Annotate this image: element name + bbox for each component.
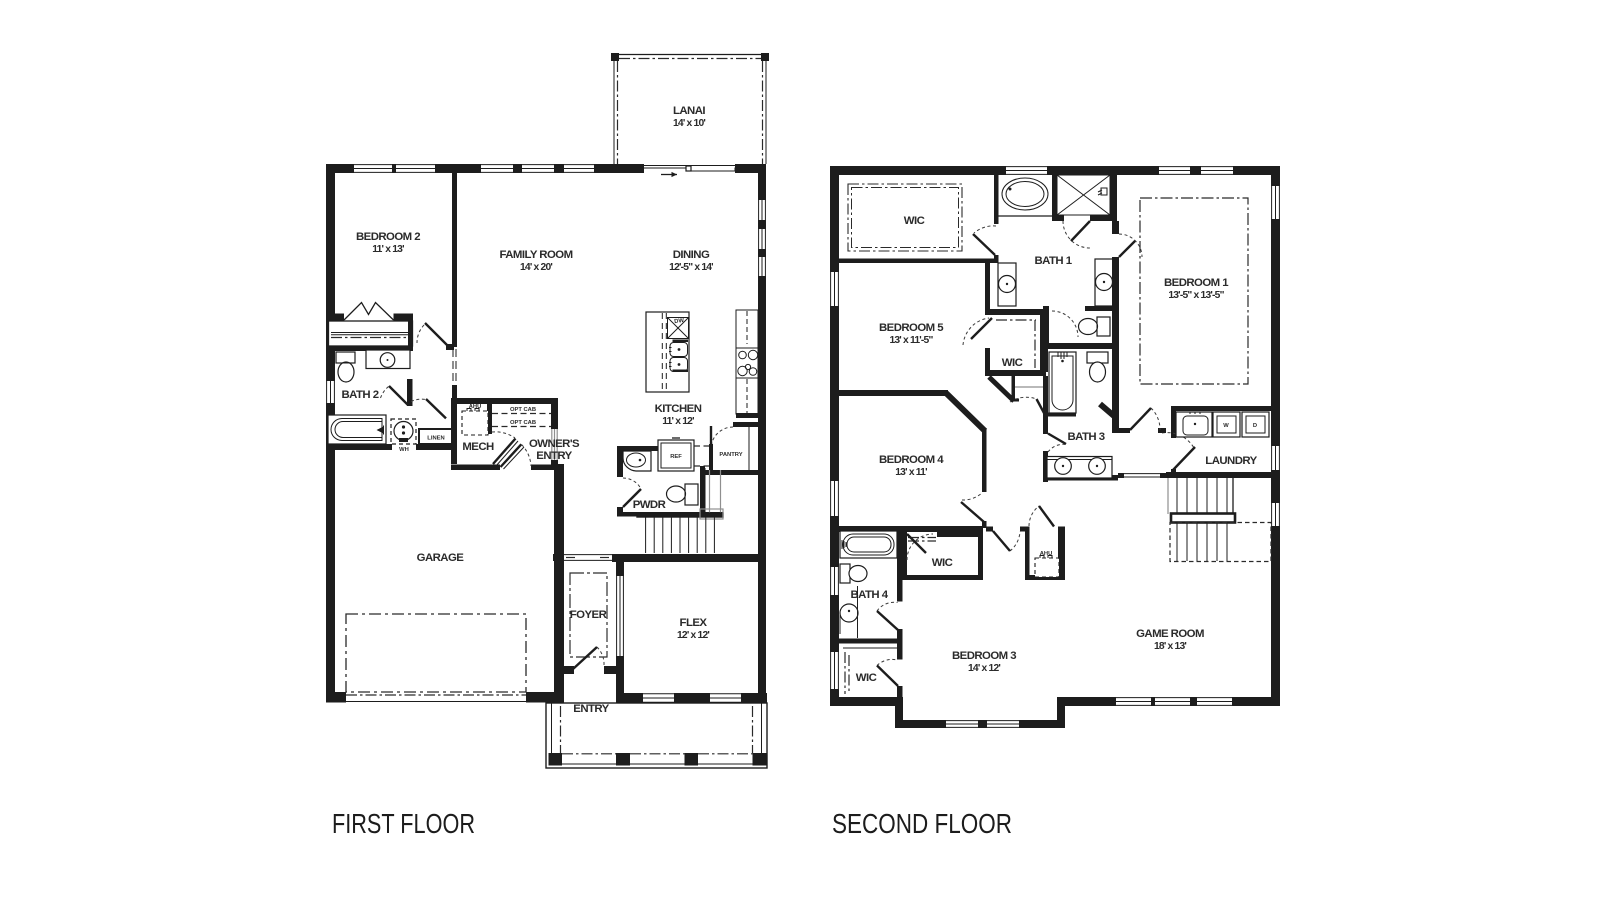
svg-text:FIRST FLOOR: FIRST FLOOR	[332, 808, 475, 839]
svg-text:BATH 3: BATH 3	[1068, 431, 1105, 443]
svg-text:W: W	[1223, 423, 1229, 429]
svg-text:REF: REF	[670, 454, 682, 460]
svg-text:BATH 2: BATH 2	[342, 389, 379, 401]
svg-text:WIC: WIC	[856, 672, 877, 684]
svg-text:13'-5" x 13'-5": 13'-5" x 13'-5"	[1168, 290, 1224, 301]
svg-text:BEDROOM 4: BEDROOM 4	[879, 454, 944, 466]
svg-text:OPT CAB: OPT CAB	[510, 420, 536, 426]
svg-text:11' x 13': 11' x 13'	[372, 244, 404, 255]
svg-text:PWDR: PWDR	[633, 499, 666, 511]
svg-text:BEDROOM 5: BEDROOM 5	[879, 322, 944, 334]
svg-text:AHU: AHU	[469, 404, 482, 410]
svg-text:OPT CAB: OPT CAB	[510, 407, 536, 413]
svg-text:WIC: WIC	[904, 215, 925, 227]
svg-text:D: D	[1253, 423, 1257, 429]
svg-text:PANTRY: PANTRY	[719, 452, 742, 458]
svg-text:LAUNDRY: LAUNDRY	[1205, 455, 1257, 467]
svg-text:WIC: WIC	[932, 557, 953, 569]
svg-text:DINING: DINING	[673, 249, 710, 261]
svg-text:14' x 20': 14' x 20'	[520, 262, 552, 273]
svg-text:GAME ROOM: GAME ROOM	[1136, 628, 1204, 640]
svg-text:BATH 4: BATH 4	[851, 589, 889, 601]
svg-text:BATH 1: BATH 1	[1035, 255, 1073, 267]
svg-text:LANAI: LANAI	[673, 105, 705, 117]
svg-text:WIC: WIC	[1002, 357, 1023, 369]
svg-text:12' x 12': 12' x 12'	[677, 630, 709, 641]
svg-text:13' x 11'-5": 13' x 11'-5"	[889, 335, 933, 346]
svg-text:SECOND FLOOR: SECOND FLOOR	[832, 808, 1012, 839]
svg-text:BEDROOM 2: BEDROOM 2	[356, 231, 420, 243]
svg-text:AHU: AHU	[1040, 551, 1053, 557]
svg-text:FLEX: FLEX	[680, 617, 708, 629]
svg-text:WH: WH	[399, 447, 409, 453]
svg-text:18' x 13': 18' x 13'	[1154, 641, 1186, 652]
svg-text:13' x 11': 13' x 11'	[895, 467, 927, 478]
svg-text:OWNER'S: OWNER'S	[529, 438, 580, 450]
svg-text:11' x 12': 11' x 12'	[662, 416, 694, 427]
svg-text:14' x 10': 14' x 10'	[673, 118, 705, 129]
svg-text:FOYER: FOYER	[570, 609, 607, 621]
svg-text:BEDROOM 3: BEDROOM 3	[952, 650, 1016, 662]
svg-text:ENTRY: ENTRY	[536, 450, 572, 462]
svg-text:ENTRY: ENTRY	[573, 703, 609, 715]
svg-text:FAMILY ROOM: FAMILY ROOM	[499, 249, 572, 261]
svg-text:LINEN: LINEN	[427, 436, 444, 442]
svg-text:MECH: MECH	[462, 441, 494, 453]
svg-text:BEDROOM 1: BEDROOM 1	[1164, 277, 1229, 289]
svg-text:KITCHEN: KITCHEN	[655, 403, 702, 415]
svg-text:14' x 12': 14' x 12'	[968, 663, 1000, 674]
svg-text:12'-5" x 14': 12'-5" x 14'	[669, 262, 713, 273]
svg-text:GARAGE: GARAGE	[417, 552, 465, 564]
